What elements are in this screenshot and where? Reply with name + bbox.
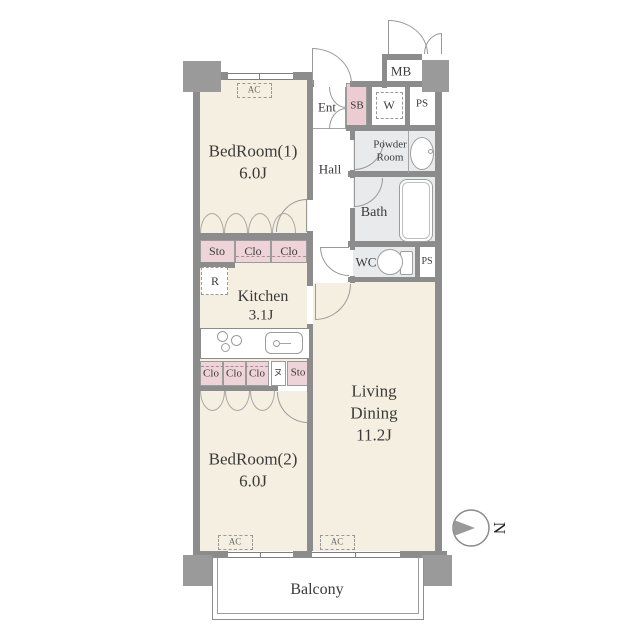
wall-segment xyxy=(193,233,313,240)
washer-label: W xyxy=(383,99,394,111)
stove-burner-icon xyxy=(231,335,242,346)
pipe-space-label: PS xyxy=(416,99,428,110)
hall-label: Hall xyxy=(319,163,341,176)
storage-label: Sto xyxy=(209,245,225,257)
living-dining-label-line2: Dining xyxy=(350,405,397,422)
kitchen-size-label: 3.1J xyxy=(249,309,274,324)
north-compass: N xyxy=(450,506,512,550)
bedroom2-name-label: BedRoom(2) xyxy=(209,451,298,468)
shoe-box-label: SB xyxy=(350,101,363,112)
ac-label: AC xyxy=(331,538,344,547)
wall-segment xyxy=(346,125,440,131)
living-dining-label-line1: Living xyxy=(351,383,396,400)
bedroom1-name-label: BedRoom(1) xyxy=(209,143,298,160)
refrigerator-label: R xyxy=(211,275,219,287)
powder-room-label-line2: Room xyxy=(377,153,404,164)
meter-box-door-arc xyxy=(388,20,428,54)
ac-label: AC xyxy=(229,538,242,547)
closet-label: Clo xyxy=(244,245,261,257)
entrance-label: Ent xyxy=(318,101,336,114)
powder-room-label-line1: Powder xyxy=(373,140,407,151)
ac-label: AC xyxy=(248,86,261,95)
window-tick xyxy=(259,73,260,80)
pipe-space-label: PS xyxy=(421,257,432,267)
balcony-label: Balcony xyxy=(290,582,343,598)
storage-symbol-label: ヌ xyxy=(273,369,282,378)
wall-segment xyxy=(193,72,200,558)
storage-label: Sto xyxy=(291,368,306,379)
wall-segment xyxy=(415,247,420,277)
wc-label: WC xyxy=(356,256,377,269)
bedroom2-size-label: 6.0J xyxy=(239,473,267,490)
closet-label: Clo xyxy=(280,245,297,257)
bathtub-inner-line xyxy=(402,182,430,239)
meter-box-label: MB xyxy=(391,65,411,78)
wall-segment xyxy=(382,54,387,88)
wall-segment xyxy=(405,83,410,128)
closet-label: Clo xyxy=(226,369,242,380)
vanity-divider-line xyxy=(408,131,409,173)
wall-segment xyxy=(367,83,372,128)
north-letter: N xyxy=(490,522,509,534)
wall-segment xyxy=(293,551,312,558)
pillar xyxy=(183,61,221,92)
faucet-icon xyxy=(428,149,433,154)
wall-segment xyxy=(307,79,313,200)
bath-label: Bath xyxy=(361,206,387,220)
pillar xyxy=(183,555,212,586)
pillar xyxy=(422,60,449,92)
meter-box-door-arc xyxy=(424,33,442,54)
kitchen-name-label: Kitchen xyxy=(238,289,289,305)
floor-plan: BedRoom(1) 6.0J Ent SB MB W PS Powder Ro… xyxy=(0,0,640,640)
faucet-spout-line xyxy=(279,343,291,344)
closet-label: Clo xyxy=(249,369,265,380)
stove-burner-icon xyxy=(221,343,230,352)
pillar xyxy=(422,555,452,586)
window xyxy=(228,73,293,80)
wall-segment xyxy=(348,277,440,282)
front-door-arc xyxy=(312,48,352,84)
living-dining-size-label: 11.2J xyxy=(356,427,392,444)
bedroom1-size-label: 6.0J xyxy=(239,165,267,182)
closet-label: Clo xyxy=(203,369,219,380)
wall-segment xyxy=(435,85,442,558)
stove-burner-icon xyxy=(217,331,228,342)
wall-segment xyxy=(348,171,440,177)
toilet-bowl-icon xyxy=(377,249,403,275)
wall-segment xyxy=(382,54,422,60)
